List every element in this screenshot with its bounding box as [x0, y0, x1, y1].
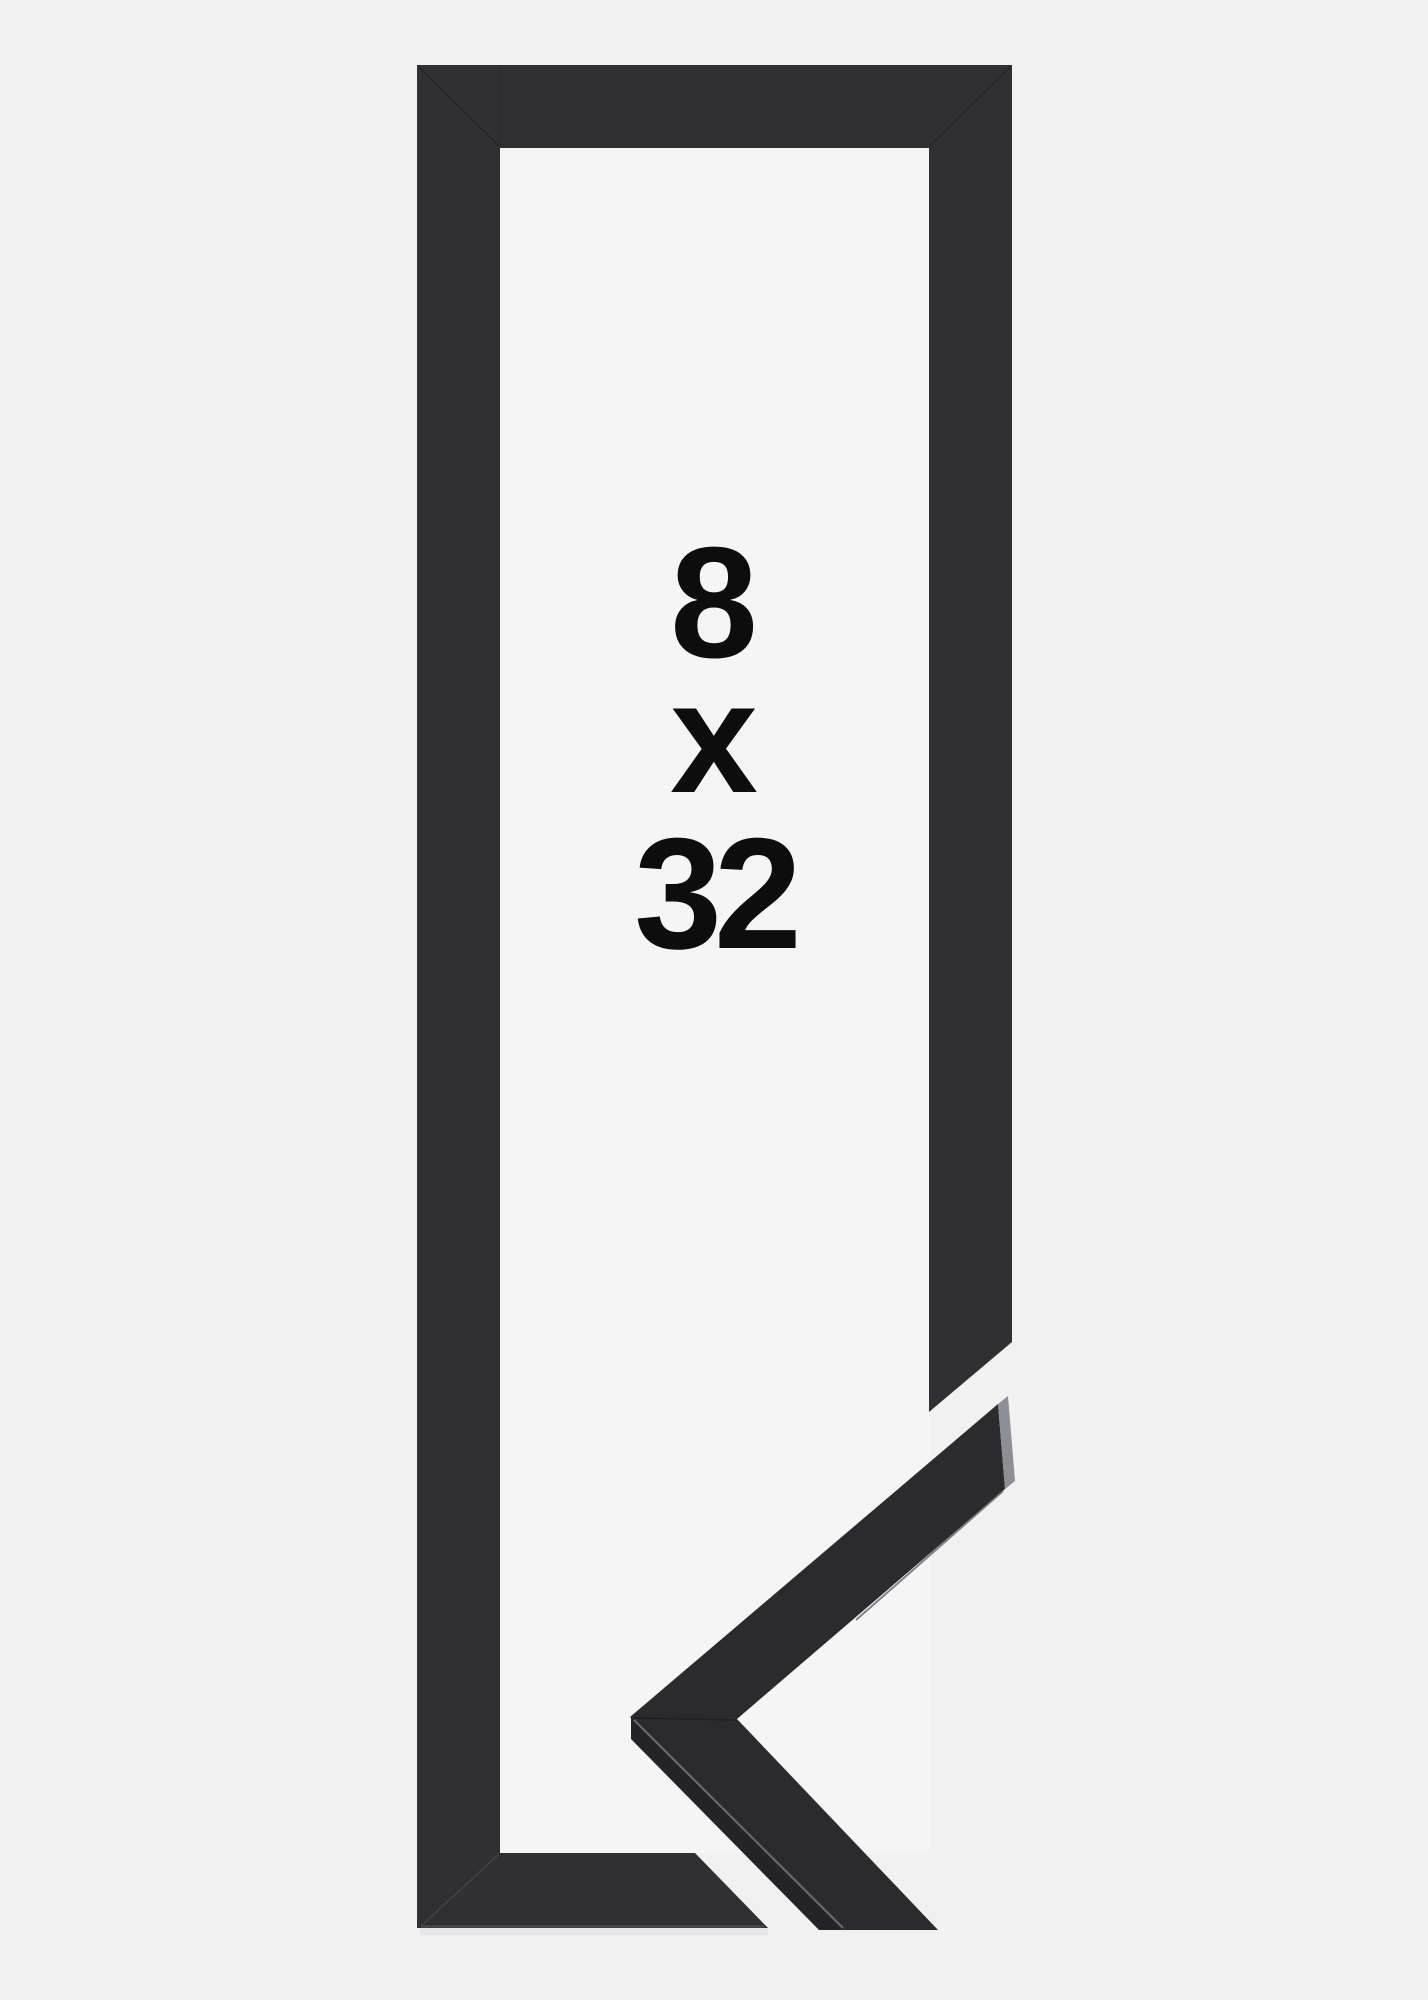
frame-bottom-shadow: [420, 1928, 768, 1935]
size-label-height: 32: [634, 806, 796, 982]
size-label-separator: x: [670, 650, 758, 826]
frame-product-image: 8 x 32: [0, 0, 1428, 2000]
